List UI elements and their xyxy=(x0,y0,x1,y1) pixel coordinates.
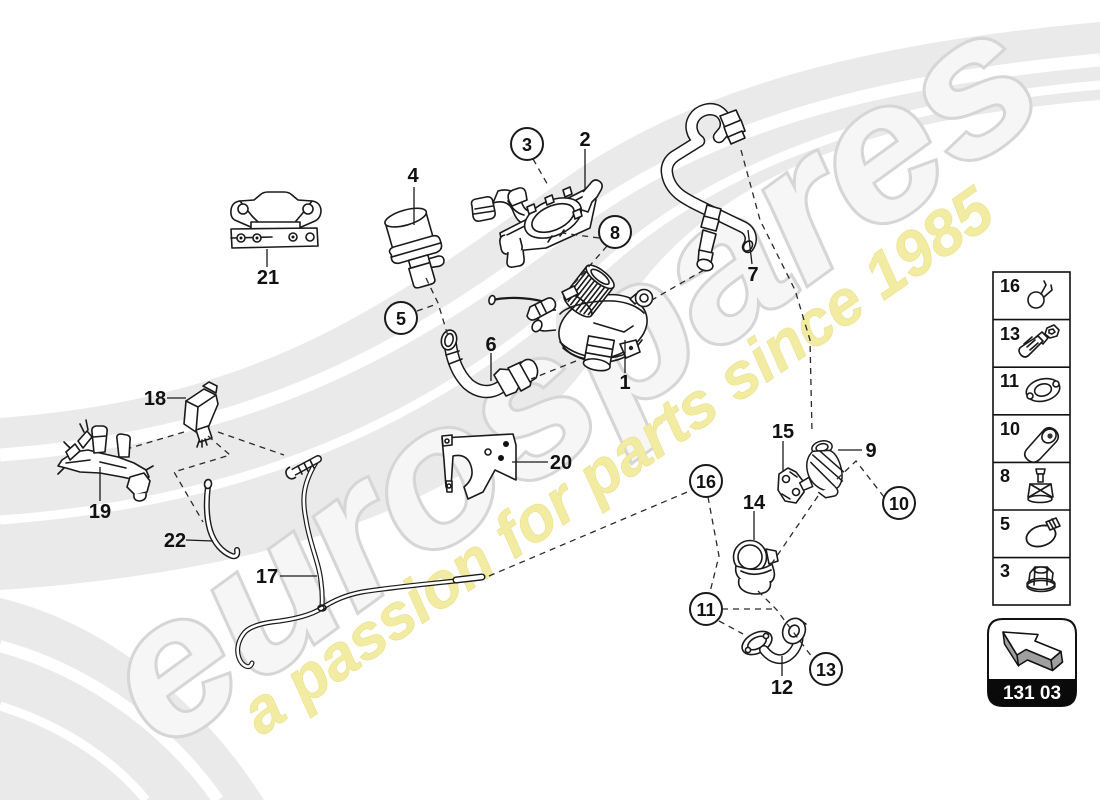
svg-text:14: 14 xyxy=(743,492,766,514)
svg-text:15: 15 xyxy=(772,421,794,443)
svg-text:10: 10 xyxy=(1000,419,1020,439)
svg-text:3: 3 xyxy=(1000,561,1010,581)
svg-text:131 03: 131 03 xyxy=(1003,683,1061,704)
svg-text:22: 22 xyxy=(164,530,186,552)
svg-text:3: 3 xyxy=(522,135,532,155)
svg-text:17: 17 xyxy=(256,566,278,588)
svg-text:2: 2 xyxy=(579,129,590,151)
svg-text:13: 13 xyxy=(1000,324,1020,344)
svg-text:6: 6 xyxy=(485,334,496,356)
svg-text:20: 20 xyxy=(550,452,572,474)
svg-text:10: 10 xyxy=(889,494,909,514)
svg-text:19: 19 xyxy=(89,501,111,523)
svg-text:8: 8 xyxy=(610,223,620,243)
svg-text:21: 21 xyxy=(257,267,279,289)
svg-text:9: 9 xyxy=(865,440,876,462)
svg-text:16: 16 xyxy=(696,472,716,492)
svg-text:18: 18 xyxy=(144,388,166,410)
svg-text:5: 5 xyxy=(1000,514,1010,534)
svg-text:1: 1 xyxy=(619,372,630,394)
svg-text:12: 12 xyxy=(771,677,793,699)
svg-text:7: 7 xyxy=(747,264,758,286)
svg-text:11: 11 xyxy=(1000,371,1019,391)
svg-text:16: 16 xyxy=(1000,276,1020,296)
svg-text:8: 8 xyxy=(1000,466,1010,486)
svg-text:13: 13 xyxy=(816,660,836,680)
svg-text:4: 4 xyxy=(407,165,419,187)
svg-text:11: 11 xyxy=(696,600,715,620)
svg-text:5: 5 xyxy=(396,309,406,329)
